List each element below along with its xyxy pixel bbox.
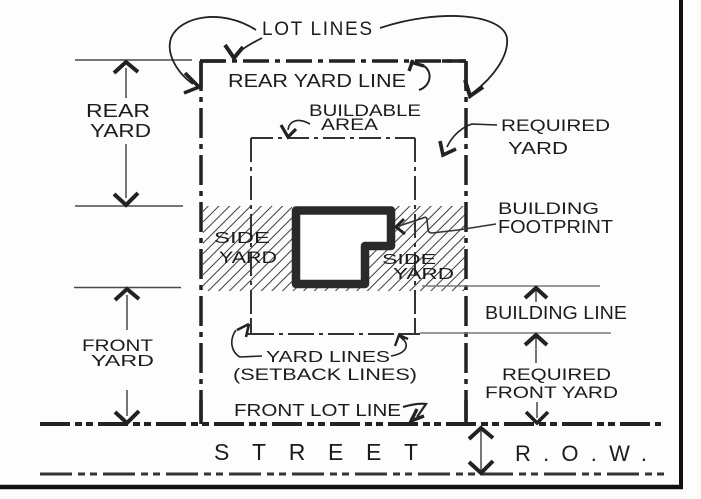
svg-text:YARD LINES: YARD LINES (266, 349, 390, 366)
svg-text:(SETBACK LINES): (SETBACK LINES) (233, 366, 417, 384)
svg-text:REQUIRED: REQUIRED (502, 365, 611, 384)
svg-text:YARD: YARD (90, 121, 151, 141)
svg-text:YARD: YARD (393, 266, 454, 283)
svg-text:BUILDING LINE: BUILDING LINE (485, 303, 627, 323)
svg-text:FRONT LOT LINE: FRONT LOT LINE (234, 400, 401, 420)
svg-text:YARD: YARD (219, 249, 277, 267)
svg-text:YARD: YARD (508, 138, 568, 158)
svg-text:LOT LINES: LOT LINES (262, 19, 372, 40)
svg-text:SIDE: SIDE (214, 230, 270, 247)
svg-text:BUILDING: BUILDING (498, 200, 599, 218)
svg-text:FRONT YARD: FRONT YARD (485, 384, 618, 402)
svg-text:FOOTPRINT: FOOTPRINT (498, 217, 613, 237)
svg-text:REAR YARD LINE: REAR YARD LINE (228, 71, 406, 91)
svg-text:AREA: AREA (321, 115, 379, 134)
svg-text:REAR: REAR (86, 101, 150, 121)
svg-text:YARD: YARD (91, 353, 154, 370)
svg-text:REQUIRED: REQUIRED (501, 116, 610, 135)
